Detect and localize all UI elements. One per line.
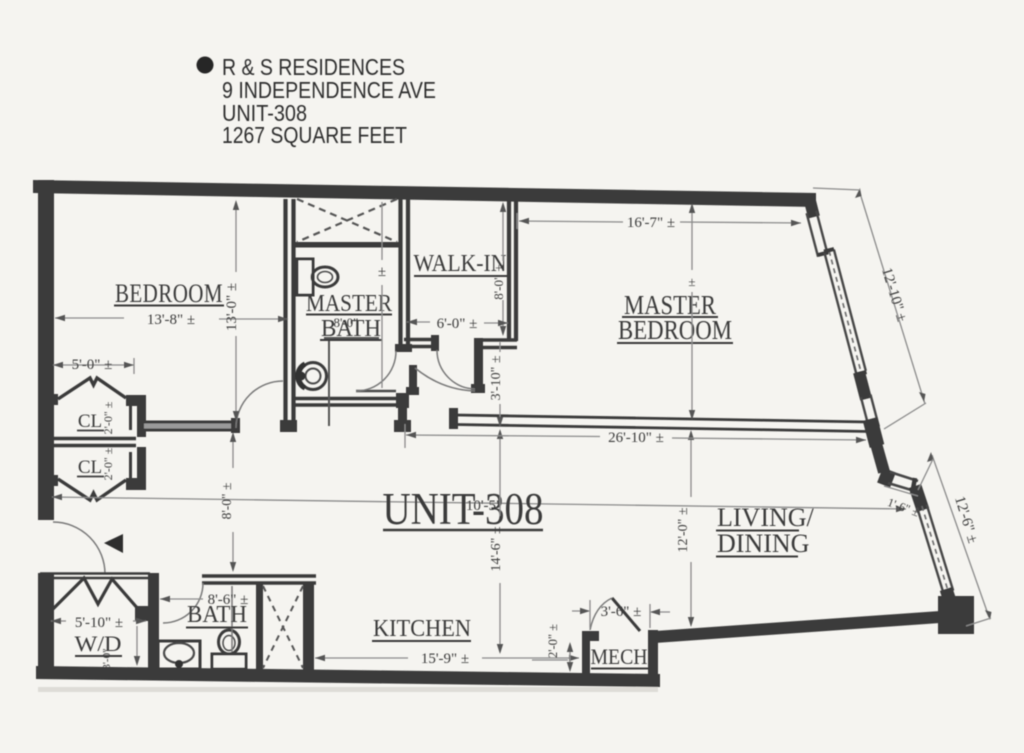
svg-text:1267 SQUARE FEET: 1267 SQUARE FEET (222, 122, 407, 148)
svg-text:3'-0": 3'-0" (101, 648, 113, 669)
svg-text:8'-6" ±: 8'-6" ± (208, 592, 249, 608)
svg-text:8'-0" ±: 8'-0" ± (491, 264, 506, 299)
svg-text:BEDROOM: BEDROOM (115, 279, 223, 308)
svg-text:±: ± (378, 264, 386, 280)
svg-text:16'-7" ±: 16'-7" ± (627, 215, 675, 231)
svg-text:KITCHEN: KITCHEN (373, 616, 471, 642)
svg-text:CL: CL (78, 411, 102, 432)
svg-text:26'-10" ±: 26'-10" ± (608, 430, 664, 446)
svg-text:13'-0" ±: 13'-0" ± (224, 283, 240, 331)
svg-text:CL: CL (78, 457, 102, 478)
svg-text:DINING: DINING (717, 529, 809, 558)
svg-text:3'-6" ±: 3'-6" ± (601, 604, 642, 620)
svg-text:15'-9" ±: 15'-9" ± (421, 651, 469, 667)
svg-text:MECH: MECH (591, 644, 648, 669)
svg-text:BEDROOM: BEDROOM (618, 315, 732, 345)
svg-text:13'-8" ±: 13'-8" ± (147, 312, 195, 328)
svg-text:±: ± (688, 274, 695, 289)
svg-text:14'-6" ±: 14'-6" ± (489, 526, 504, 571)
svg-text:UNIT-308: UNIT-308 (383, 484, 544, 534)
svg-text:12'-0" ±: 12'-0" ± (676, 507, 691, 552)
svg-text:W/D: W/D (75, 631, 122, 656)
svg-text:2'-0" ±: 2'-0" ± (101, 401, 115, 434)
svg-text:6'-0" ±: 6'-0" ± (437, 316, 478, 332)
svg-text:8'-0" ±: 8'-0" ± (219, 483, 234, 520)
svg-text:2'-0" ±: 2'-0" ± (546, 624, 560, 658)
svg-text:3'-10" ±: 3'-10" ± (489, 355, 504, 400)
svg-text:BATH: BATH (321, 316, 381, 342)
svg-text:LIVING/: LIVING/ (717, 503, 815, 532)
svg-text:2'-0" ±: 2'-0" ± (101, 447, 115, 480)
svg-text:5'-10" ±: 5'-10" ± (75, 615, 123, 631)
svg-text:MASTER: MASTER (306, 291, 392, 317)
svg-text:5'-0" ±: 5'-0" ± (72, 357, 113, 373)
